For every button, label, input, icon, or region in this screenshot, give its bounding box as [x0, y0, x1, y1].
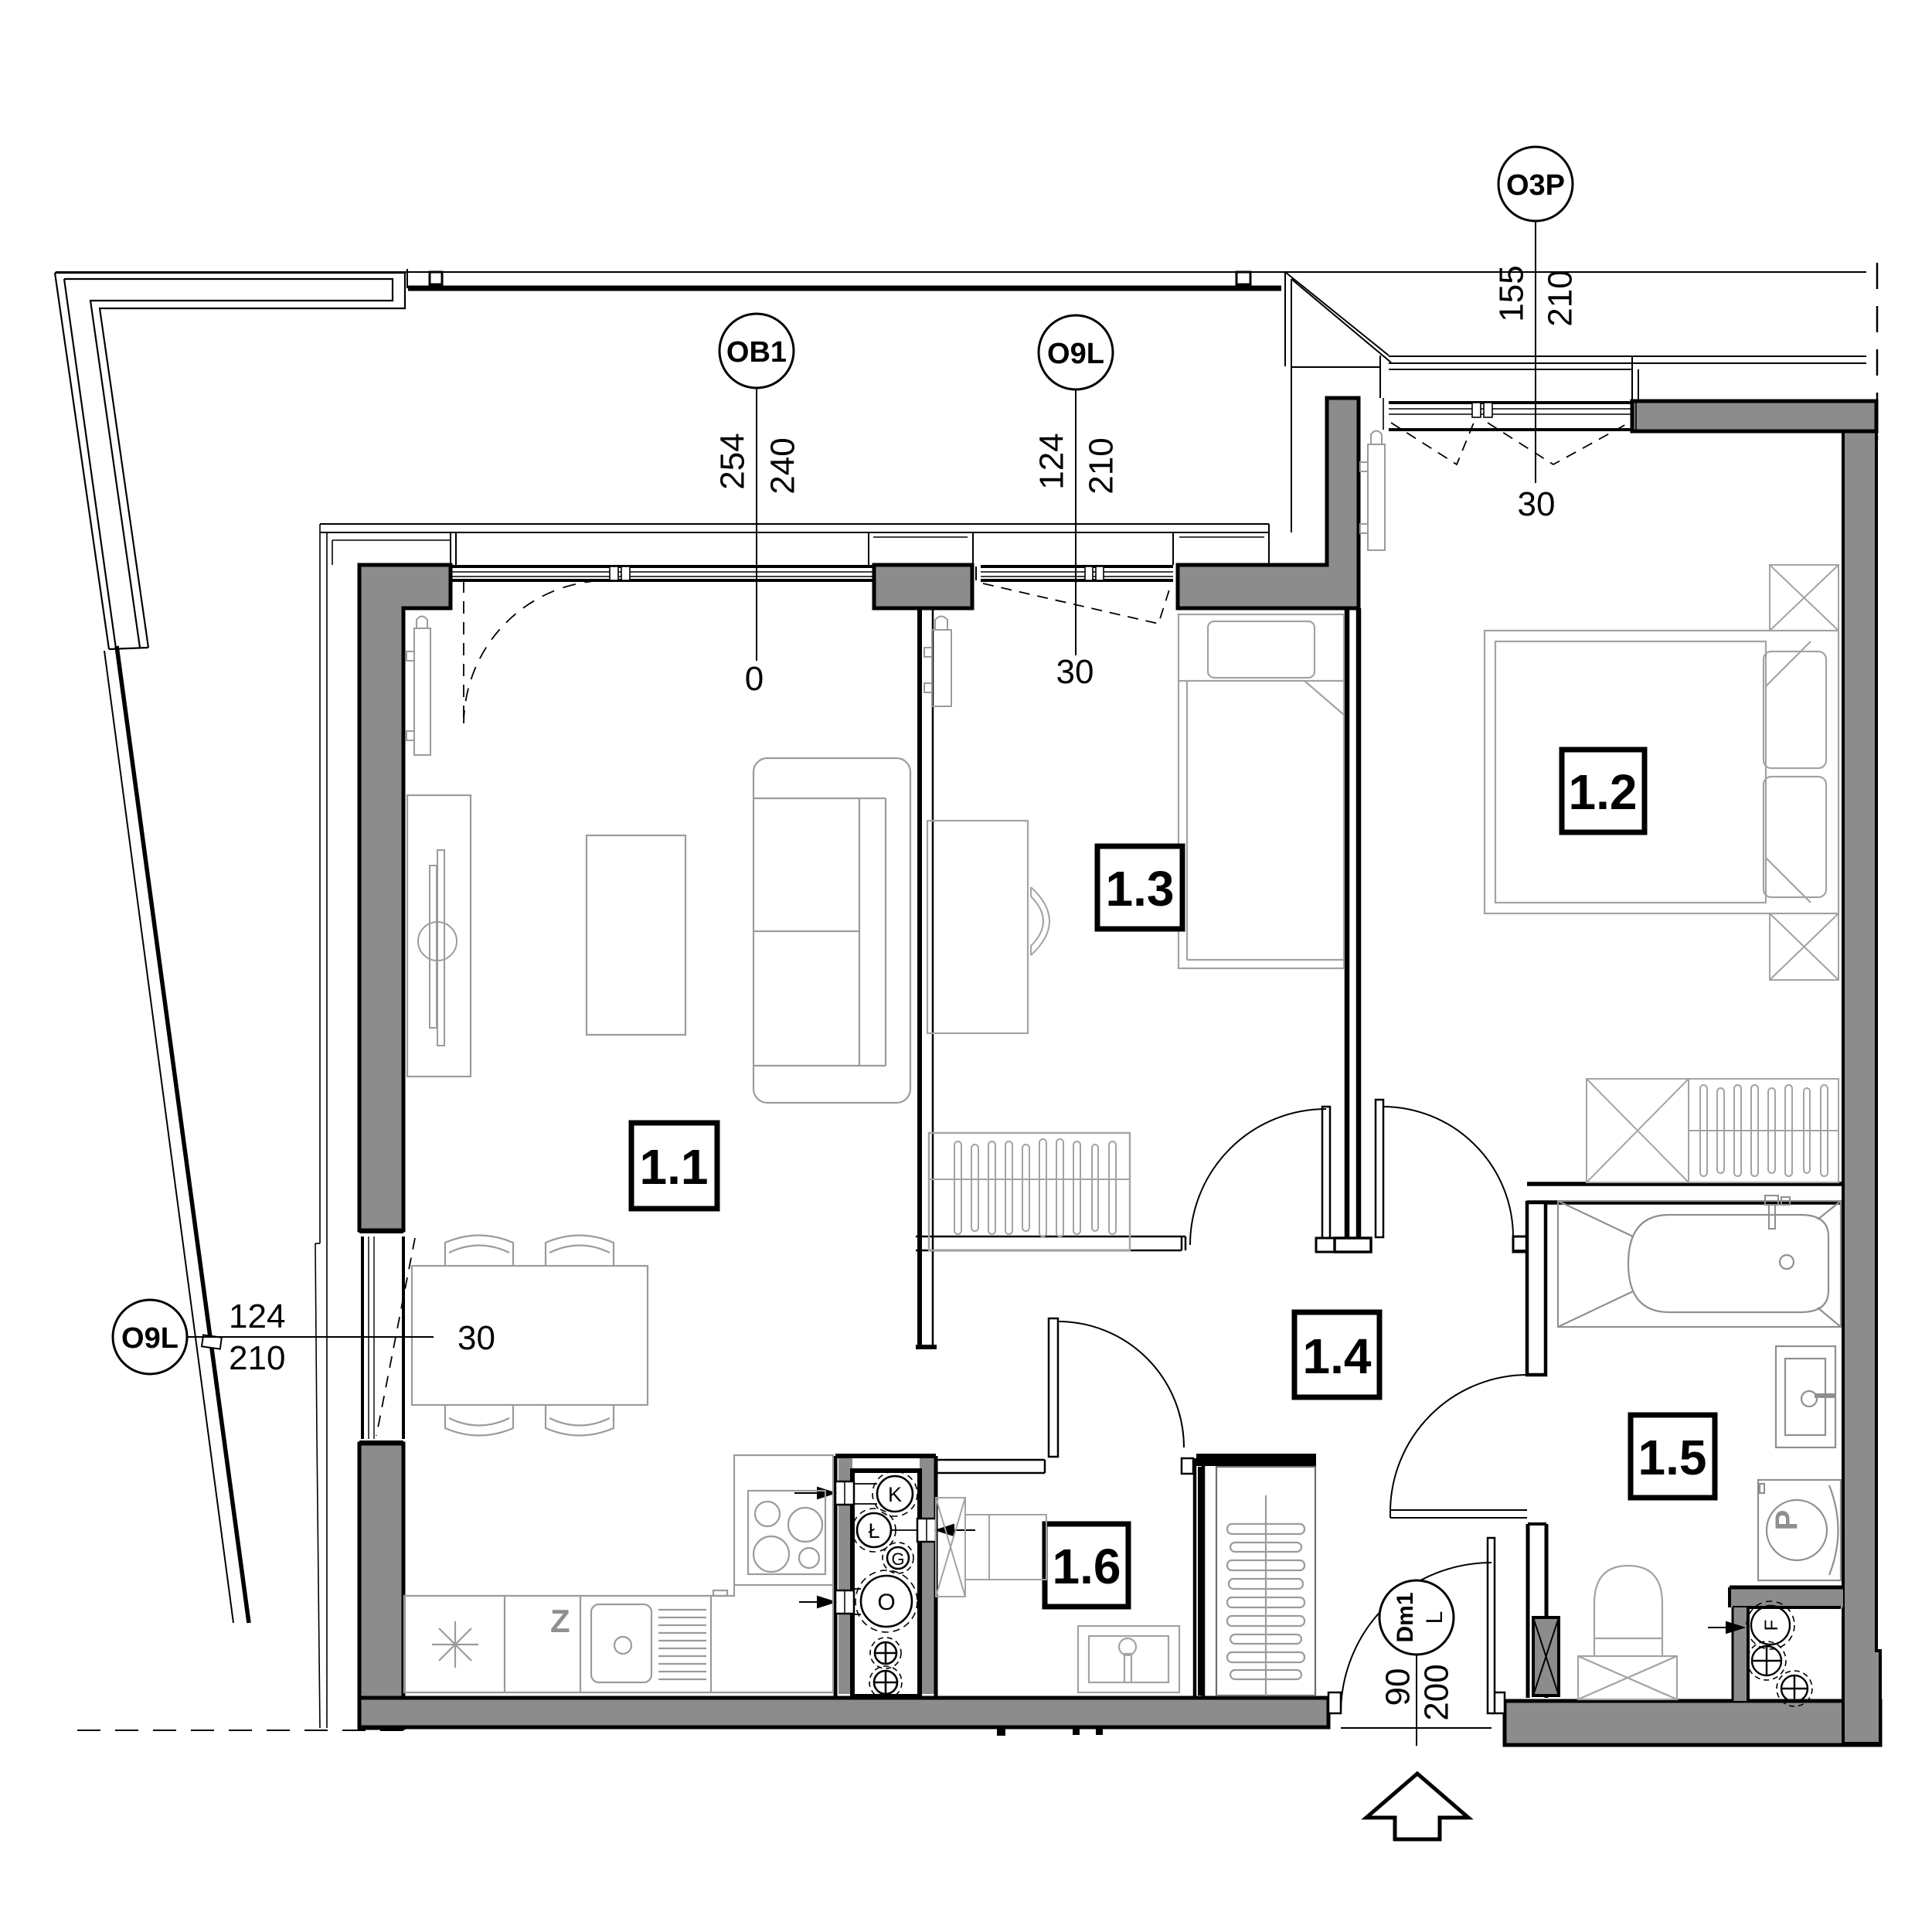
svg-text:O3P: O3P [1506, 169, 1565, 202]
svg-text:210: 210 [1083, 437, 1121, 494]
svg-text:1.5: 1.5 [1638, 1430, 1707, 1485]
svg-text:124: 124 [229, 1298, 285, 1335]
svg-text:30: 30 [1056, 653, 1094, 691]
svg-text:210: 210 [229, 1339, 285, 1377]
svg-text:124: 124 [1033, 433, 1071, 489]
svg-text:1.4: 1.4 [1303, 1328, 1372, 1384]
svg-text:OB1: OB1 [726, 336, 787, 369]
svg-text:P: P [1770, 1510, 1804, 1531]
svg-text:240: 240 [764, 437, 802, 494]
svg-text:1.6: 1.6 [1053, 1539, 1121, 1594]
svg-text:1.3: 1.3 [1106, 861, 1175, 917]
svg-text:210: 210 [1542, 270, 1580, 326]
svg-text:Z: Z [550, 1603, 570, 1639]
svg-text:155: 155 [1493, 265, 1531, 321]
svg-text:G: G [891, 1549, 904, 1569]
svg-text:30: 30 [457, 1319, 495, 1357]
svg-text:K: K [888, 1483, 902, 1506]
svg-text:Ł: Ł [868, 1519, 879, 1543]
svg-text:O9L: O9L [1047, 338, 1104, 370]
svg-text:200: 200 [1418, 1664, 1456, 1720]
svg-text:L: L [1422, 1611, 1447, 1624]
svg-text:90: 90 [1379, 1668, 1417, 1706]
svg-text:F: F [1761, 1620, 1782, 1631]
svg-text:30: 30 [1518, 485, 1556, 523]
svg-text:1.2: 1.2 [1569, 764, 1638, 820]
svg-text:0: 0 [745, 660, 764, 698]
svg-text:254: 254 [714, 433, 752, 489]
svg-text:O: O [877, 1590, 895, 1615]
svg-text:1.1: 1.1 [640, 1139, 709, 1195]
svg-text:O9L: O9L [121, 1322, 179, 1355]
svg-text:Dm1: Dm1 [1393, 1592, 1418, 1642]
